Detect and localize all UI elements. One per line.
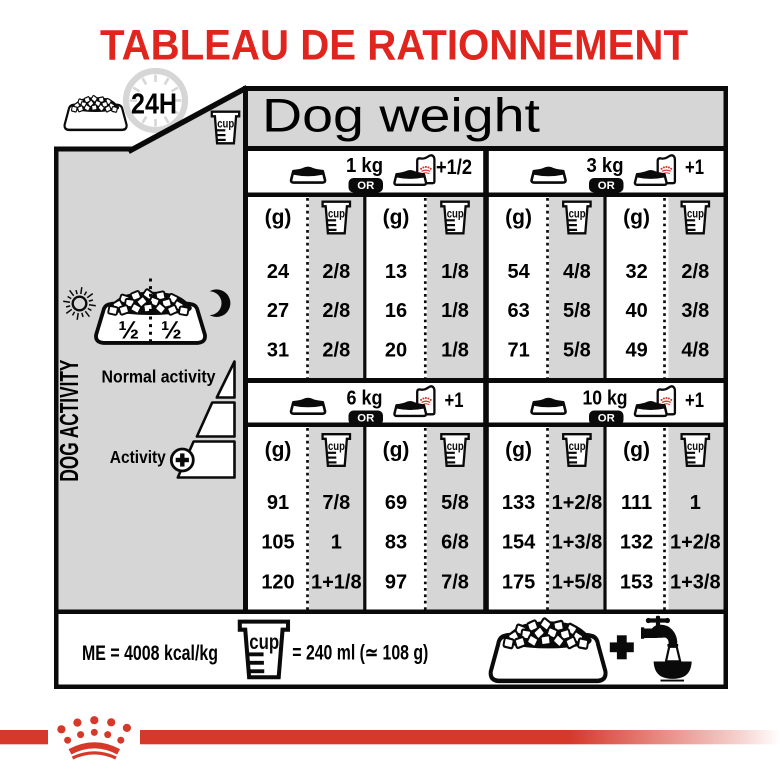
svg-text:111: 111 — [621, 492, 652, 514]
svg-text:(g): (g) — [623, 438, 650, 461]
svg-text:63: 63 — [507, 300, 529, 322]
svg-text:7/8: 7/8 — [441, 571, 469, 593]
svg-text:120: 120 — [261, 571, 294, 593]
svg-text:175: 175 — [502, 571, 535, 593]
svg-text:40: 40 — [625, 300, 647, 322]
svg-text:5/8: 5/8 — [441, 492, 469, 514]
svg-text:13: 13 — [385, 261, 407, 283]
svg-text:+1: +1 — [685, 389, 704, 412]
svg-text:5/8: 5/8 — [563, 300, 591, 322]
svg-text:24: 24 — [267, 261, 290, 283]
svg-text:1/8: 1/8 — [441, 261, 469, 283]
svg-text:32: 32 — [625, 261, 647, 283]
svg-text:OR: OR — [598, 413, 615, 425]
svg-text:2/8: 2/8 — [322, 340, 350, 362]
svg-text:7/8: 7/8 — [322, 492, 350, 514]
svg-text:(g): (g) — [383, 206, 410, 229]
svg-text:1: 1 — [331, 531, 342, 553]
svg-text:(g): (g) — [383, 438, 410, 461]
svg-text:31: 31 — [267, 340, 289, 362]
svg-text:133: 133 — [502, 492, 535, 514]
svg-text:(g): (g) — [265, 206, 292, 229]
svg-text:105: 105 — [261, 531, 294, 553]
svg-text:16: 16 — [385, 300, 407, 322]
svg-text:Activity: Activity — [110, 447, 166, 467]
svg-text:153: 153 — [620, 571, 653, 593]
svg-text:91: 91 — [267, 492, 289, 514]
svg-text:71: 71 — [507, 340, 529, 362]
svg-text:OR: OR — [598, 180, 615, 192]
svg-text:TABLEAU DE RATIONNEMENT: TABLEAU DE RATIONNEMENT — [100, 23, 688, 70]
svg-text:3/8: 3/8 — [681, 300, 709, 322]
svg-text:2/8: 2/8 — [322, 261, 350, 283]
svg-text:1: 1 — [690, 492, 701, 514]
svg-text:1+2/8: 1+2/8 — [670, 531, 721, 553]
svg-text:4/8: 4/8 — [563, 261, 591, 283]
svg-text:54: 54 — [507, 261, 530, 283]
svg-text:Dog weight: Dog weight — [262, 89, 540, 142]
svg-text:6 kg: 6 kg — [347, 388, 383, 410]
svg-text:= 240 ml (≃ 108 g): = 240 ml (≃ 108 g) — [292, 642, 428, 665]
svg-text:3 kg: 3 kg — [587, 155, 624, 177]
svg-text:(g): (g) — [623, 206, 650, 229]
svg-text:154: 154 — [502, 531, 536, 553]
svg-text:83: 83 — [385, 531, 407, 553]
svg-text:+1/2: +1/2 — [436, 156, 472, 179]
svg-text:1+5/8: 1+5/8 — [552, 571, 603, 593]
svg-text:1/8: 1/8 — [441, 300, 469, 322]
svg-text:4/8: 4/8 — [681, 340, 709, 362]
svg-text:49: 49 — [625, 340, 647, 362]
svg-text:24H: 24H — [131, 89, 177, 121]
svg-text:69: 69 — [385, 492, 407, 514]
svg-text:ME = 4008 kcal/kg: ME = 4008 kcal/kg — [82, 642, 218, 665]
svg-text:1+2/8: 1+2/8 — [552, 492, 603, 514]
svg-text:(g): (g) — [265, 438, 292, 461]
svg-text:27: 27 — [267, 300, 289, 322]
svg-text:+1: +1 — [685, 156, 704, 179]
svg-text:6/8: 6/8 — [441, 531, 469, 553]
svg-text:DOG ACTIVITY: DOG ACTIVITY — [54, 360, 84, 482]
svg-text:½: ½ — [118, 317, 139, 345]
svg-text:+1: +1 — [445, 389, 464, 412]
svg-text:1+1/8: 1+1/8 — [311, 571, 362, 593]
svg-text:1+3/8: 1+3/8 — [670, 571, 721, 593]
svg-text:20: 20 — [385, 340, 407, 362]
svg-text:OR: OR — [357, 413, 374, 425]
svg-text:2/8: 2/8 — [322, 300, 350, 322]
svg-text:Normal activity: Normal activity — [102, 367, 216, 387]
svg-text:½: ½ — [161, 317, 182, 345]
svg-text:OR: OR — [357, 180, 374, 192]
svg-text:2/8: 2/8 — [681, 261, 709, 283]
svg-text:(g): (g) — [505, 438, 532, 461]
svg-text:132: 132 — [620, 531, 653, 553]
svg-text:1+3/8: 1+3/8 — [552, 531, 603, 553]
svg-text:1 kg: 1 kg — [346, 155, 383, 177]
svg-text:1/8: 1/8 — [441, 340, 469, 362]
svg-text:10 kg: 10 kg — [583, 388, 628, 410]
svg-text:97: 97 — [385, 571, 407, 593]
svg-text:5/8: 5/8 — [563, 340, 591, 362]
svg-text:(g): (g) — [505, 206, 532, 229]
